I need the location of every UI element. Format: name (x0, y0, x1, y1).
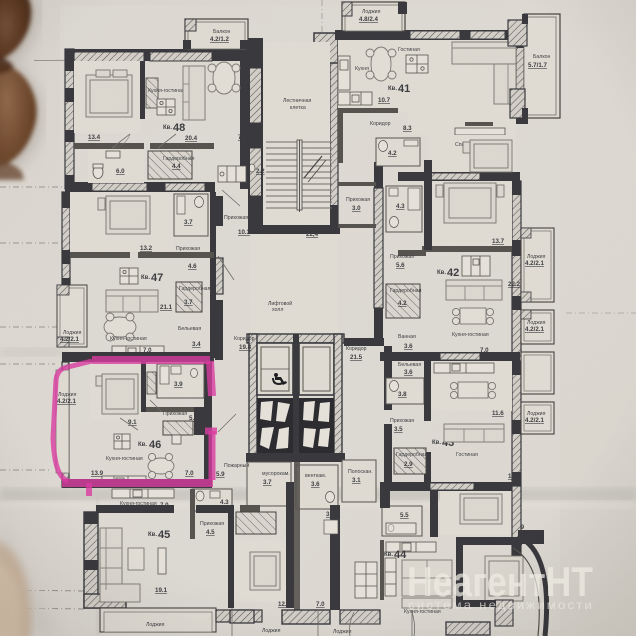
svg-text:система недвижимости: система недвижимости (408, 598, 594, 612)
